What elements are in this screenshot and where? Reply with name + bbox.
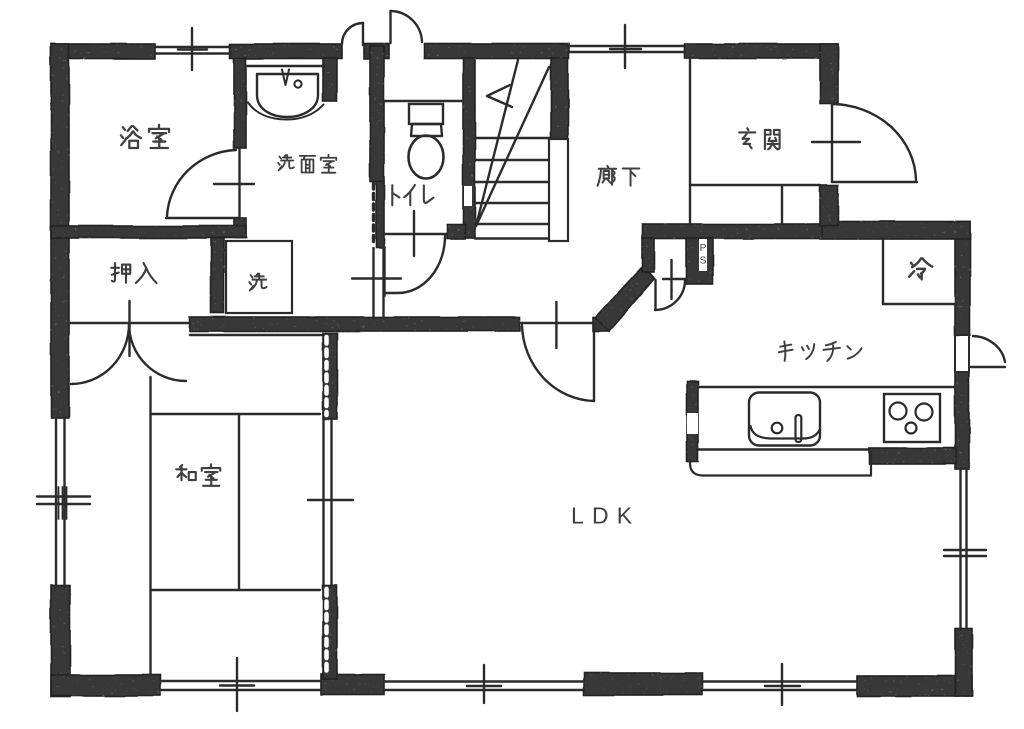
svg-text:P: P xyxy=(700,243,707,254)
svg-text:LDK: LDK xyxy=(571,503,640,529)
svg-text:S: S xyxy=(700,256,707,267)
